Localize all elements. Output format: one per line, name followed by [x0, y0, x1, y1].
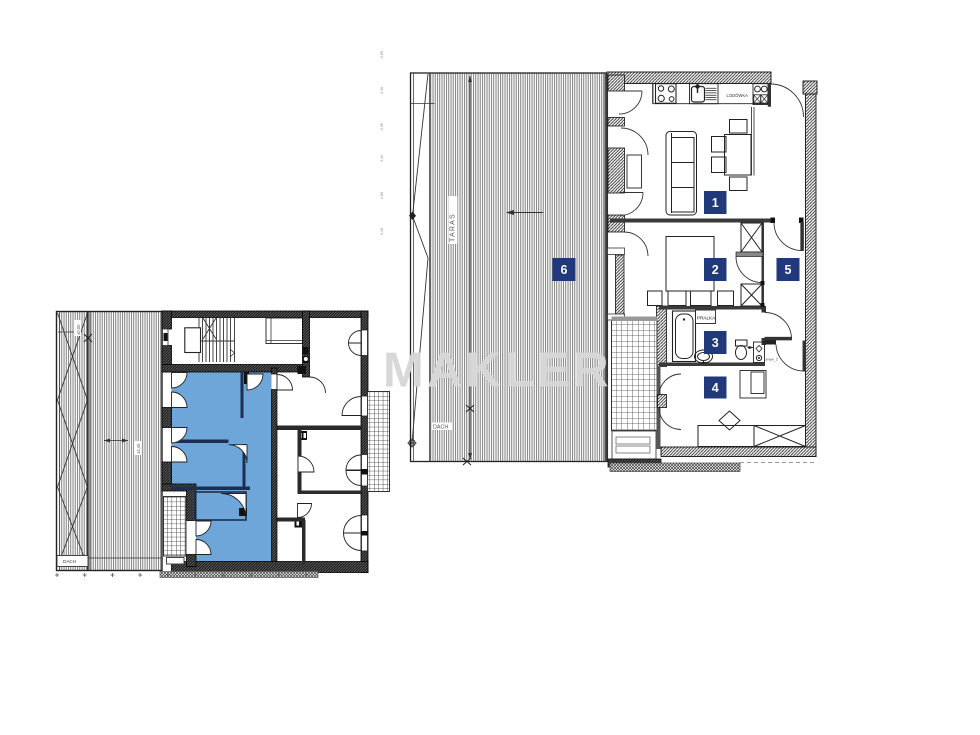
svg-text:TARAS: TARAS: [450, 213, 457, 242]
svg-text:14,45: 14,45: [136, 443, 141, 454]
svg-text:DACH: DACH: [433, 425, 448, 431]
svg-text:4: 4: [712, 381, 719, 395]
svg-text:1: 1: [712, 196, 719, 210]
svg-text:DACH: DACH: [63, 559, 76, 564]
svg-text:3,40: 3,40: [380, 155, 384, 162]
svg-text:2: 2: [712, 263, 719, 277]
svg-text:6: 6: [561, 263, 568, 277]
svg-text:LODÓWKA: LODÓWKA: [727, 93, 749, 98]
svg-text:3: 3: [712, 336, 719, 350]
svg-text:±0,00: ±0,00: [76, 324, 81, 335]
svg-text:3,15: 3,15: [380, 228, 384, 235]
svg-text:2,85: 2,85: [380, 51, 384, 58]
svg-text:2,95: 2,95: [380, 123, 384, 130]
svg-text:umyw_2: umyw_2: [765, 358, 778, 362]
svg-text:2,80: 2,80: [380, 192, 384, 199]
svg-text:PRALKA: PRALKA: [697, 316, 716, 321]
svg-text:3,10: 3,10: [380, 87, 384, 94]
svg-text:5: 5: [785, 263, 792, 277]
svg-text:MAKLER: MAKLER: [383, 344, 612, 398]
